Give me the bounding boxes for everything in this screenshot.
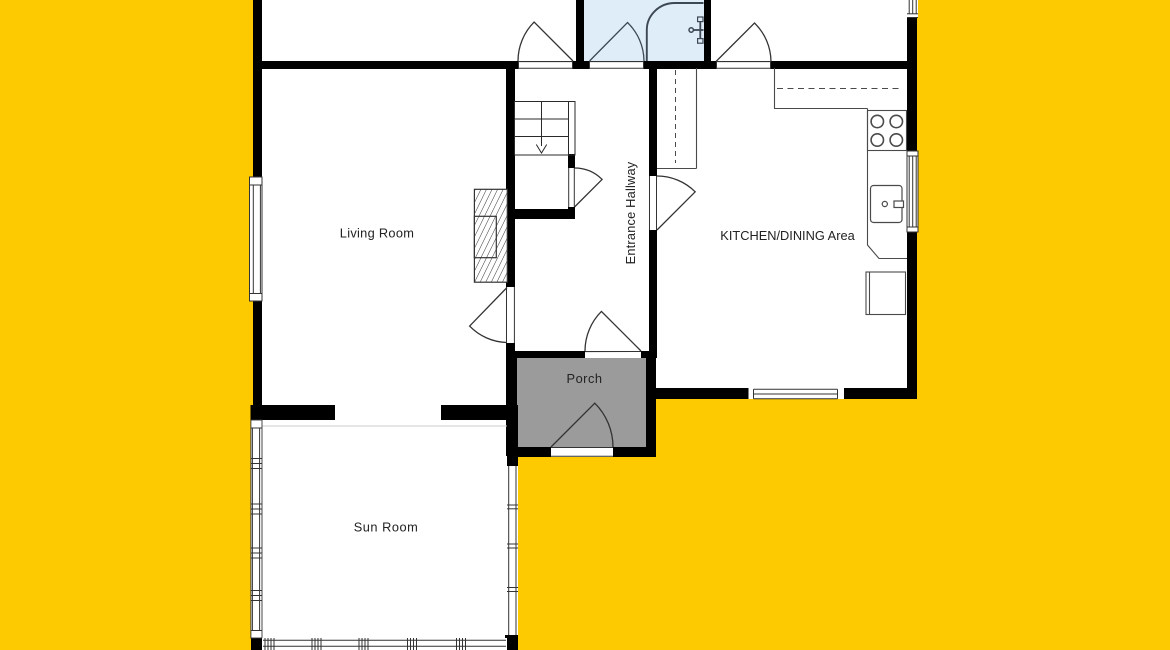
svg-text:KITCHEN/DINING Area: KITCHEN/DINING Area xyxy=(720,228,855,243)
svg-text:Entrance Hallway: Entrance Hallway xyxy=(623,161,638,264)
svg-text:Sun Room: Sun Room xyxy=(354,520,418,535)
svg-text:Porch: Porch xyxy=(567,371,603,386)
svg-text:Living Room: Living Room xyxy=(340,225,414,240)
